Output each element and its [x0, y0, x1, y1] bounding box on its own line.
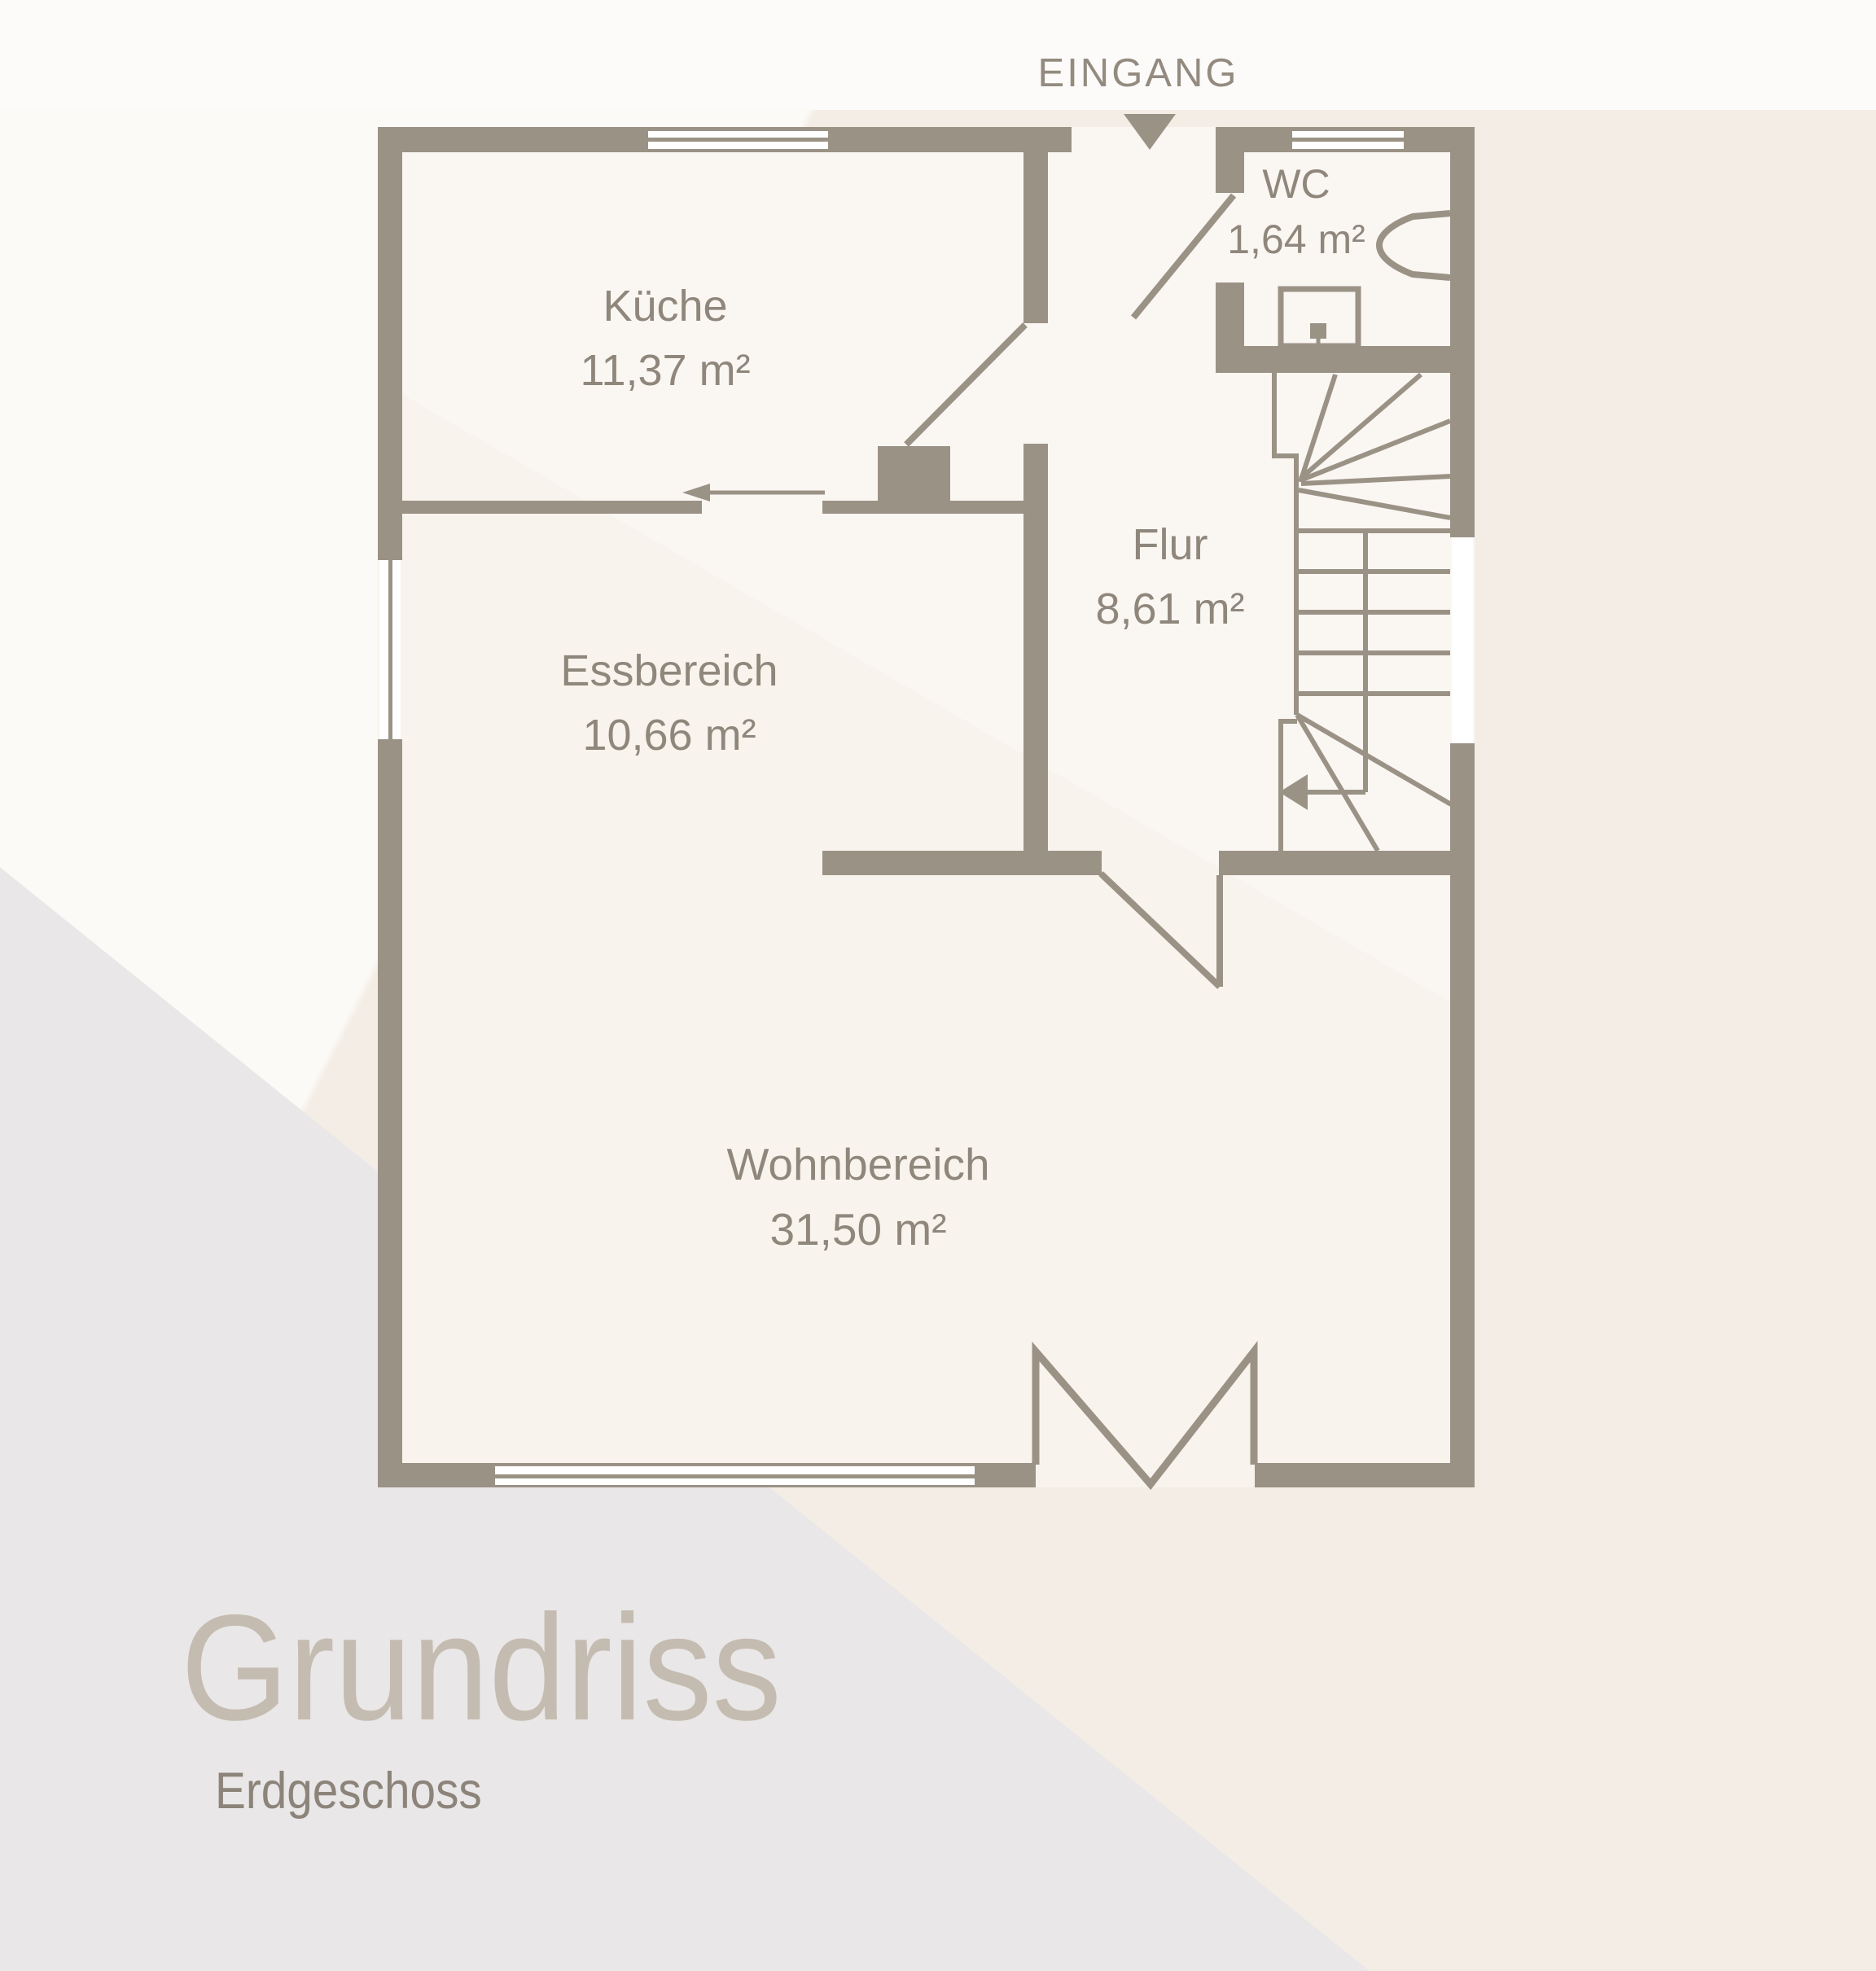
room-name: Flur	[1095, 519, 1244, 572]
room-area: 8,61 m²	[1095, 583, 1244, 636]
room-area: 11,37 m²	[580, 344, 750, 397]
room-name: WC	[1227, 160, 1365, 208]
room-label-essbereich: Essbereich 10,66 m²	[560, 645, 778, 762]
floor-subtitle: Erdgeschoss	[215, 1762, 772, 1820]
room-label-wc: WC 1,64 m²	[1227, 160, 1365, 264]
room-name: Wohnbereich	[726, 1137, 989, 1191]
window-wc	[1292, 131, 1404, 149]
floorplan-canvas: EINGANG Küche 11,37 m² WC 1,64 m² Flur 8…	[0, 0, 1876, 1971]
window-essbereich	[379, 560, 401, 739]
room-label-flur: Flur 8,61 m²	[1095, 519, 1244, 636]
window-wohnbereich	[495, 1466, 975, 1485]
room-label-kueche: Küche 11,37 m²	[580, 280, 750, 397]
window-kueche	[648, 131, 828, 149]
page-title: Grundriss	[181, 1586, 782, 1752]
entrance-label: EINGANG	[1038, 50, 1239, 96]
room-area: 10,66 m²	[560, 709, 778, 762]
room-name: Essbereich	[560, 645, 778, 698]
chimney-block	[878, 446, 950, 501]
room-area: 31,50 m²	[726, 1202, 989, 1256]
title-block: Grundriss Erdgeschoss	[181, 1586, 834, 1820]
window-treppe	[1452, 537, 1473, 743]
room-name: Küche	[580, 280, 750, 333]
room-area: 1,64 m²	[1227, 215, 1365, 264]
room-label-wohnbereich: Wohnbereich 31,50 m²	[726, 1137, 989, 1256]
floor	[378, 127, 1475, 1487]
